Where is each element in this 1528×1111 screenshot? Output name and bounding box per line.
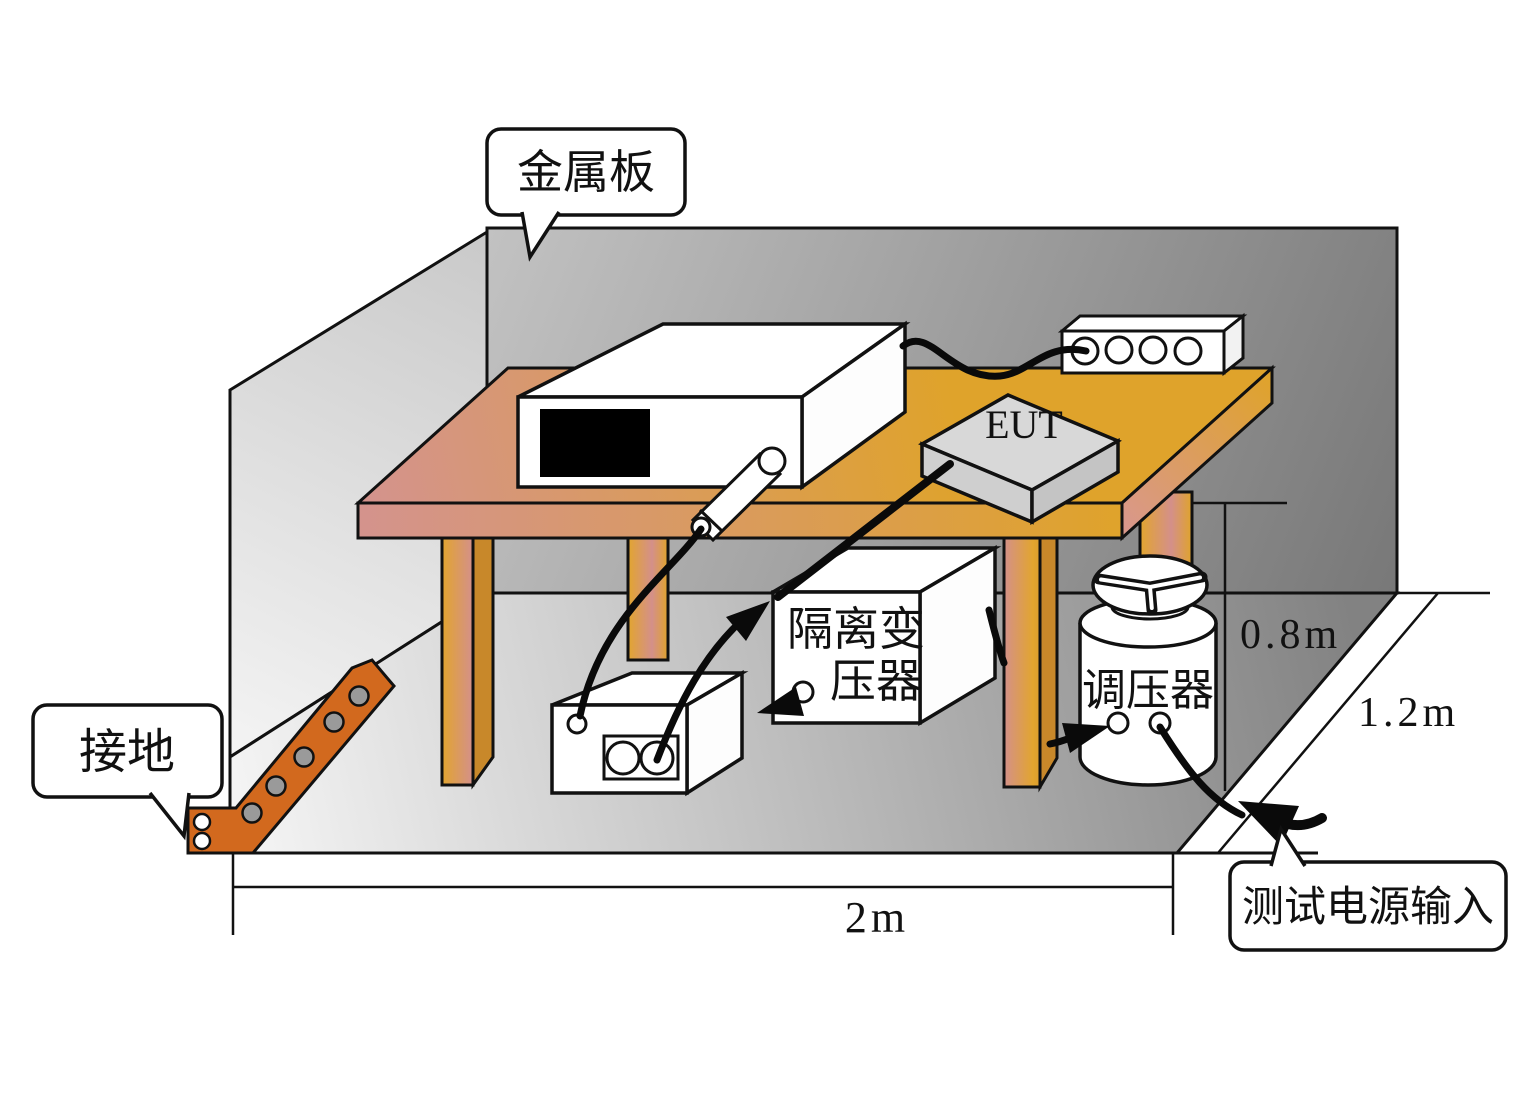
table-leg-rear-left	[628, 538, 668, 660]
strap-hole	[194, 833, 210, 849]
table-leg-front-right	[1004, 538, 1057, 787]
coupler-port	[759, 448, 785, 474]
strap-rivet	[325, 713, 344, 732]
power-input-arrow	[1238, 801, 1299, 846]
voltage-regulator-label: 调压器	[1082, 666, 1214, 715]
strap-rivet	[243, 804, 262, 823]
outlet	[1140, 337, 1166, 363]
isolation-transformer-label-line2: 压器	[830, 655, 922, 707]
emc-test-setup-diagram: EUT 隔离变 压器 调压器	[0, 0, 1528, 1111]
metal-plate-label: 金属板	[517, 146, 655, 198]
voltage-regulator: 调压器	[1080, 556, 1216, 785]
strap-rivet	[295, 748, 314, 767]
diagram-canvas: EUT 隔离变 压器 调压器	[0, 0, 1528, 1111]
strap-rivet	[267, 777, 286, 796]
strap-hole	[194, 814, 210, 830]
dimension-depth: 1.2m	[1358, 690, 1459, 736]
regulator-port	[1108, 713, 1128, 733]
power-strip	[1062, 316, 1243, 373]
outlet	[1106, 337, 1132, 363]
dimension-height: 0.8m	[1240, 612, 1341, 658]
isolation-transformer-label-line1: 隔离变	[787, 603, 925, 655]
table-leg-front-left	[442, 538, 493, 785]
grounding-label: 接地	[79, 726, 175, 779]
callout-test-power-input: 测试电源输入	[1230, 829, 1506, 950]
generator-display	[540, 409, 650, 477]
dimension-width: 2m	[845, 893, 909, 942]
junction-box-socket	[607, 742, 639, 774]
test-power-input-label: 测试电源输入	[1242, 883, 1494, 930]
eut-label: EUT	[985, 402, 1063, 447]
outlet	[1175, 338, 1201, 364]
strap-rivet	[350, 687, 369, 706]
